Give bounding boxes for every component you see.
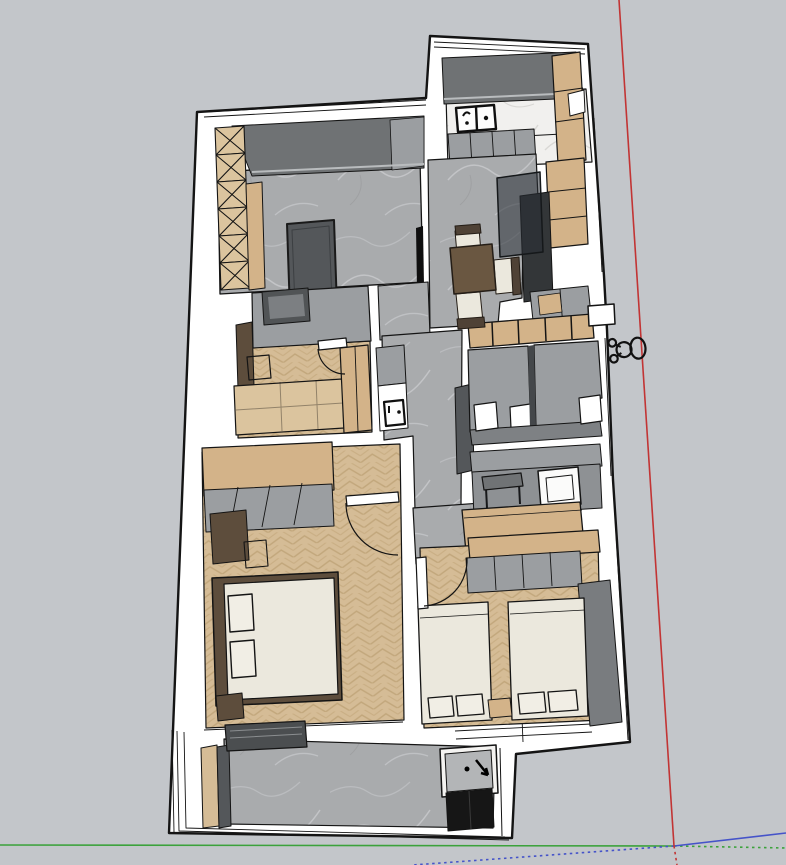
living-window-end-panel <box>390 117 424 170</box>
master-bedroom <box>202 442 404 728</box>
wall-tv <box>416 226 424 288</box>
lattice-shelf <box>215 126 250 290</box>
open-entry-door <box>588 304 615 326</box>
balcony-wood-strip <box>201 745 219 828</box>
balcony-planter <box>217 745 231 828</box>
monitor-screen <box>268 294 305 319</box>
kids-door-leaf <box>416 557 428 609</box>
model-canvas[interactable] <box>0 0 786 865</box>
dining-table <box>450 244 496 294</box>
washbasin-icon <box>384 400 405 426</box>
kitchen <box>442 52 592 168</box>
pillow <box>456 694 484 716</box>
wall-notch <box>568 90 585 116</box>
shower-door-opening <box>474 402 498 431</box>
pillow <box>518 692 546 714</box>
sketchup-viewport[interactable] <box>0 0 786 865</box>
pillow <box>428 696 454 718</box>
drying-rack <box>225 721 307 751</box>
drain-dot <box>465 767 470 772</box>
hall-upper-floor <box>378 282 430 340</box>
study-wardrobe <box>340 345 372 433</box>
study-bedroom <box>234 286 372 438</box>
study-side-cabinet <box>236 322 254 389</box>
toilet-door-opening <box>579 395 602 424</box>
kids-bedroom <box>416 530 622 728</box>
bathroom <box>468 341 602 445</box>
double-bed <box>212 572 342 706</box>
pillow <box>228 594 254 632</box>
single-bed-right <box>508 598 588 720</box>
entry-cabinet-wood-patch <box>538 293 562 315</box>
alcove-wall <box>376 345 406 386</box>
balcony-sink-unit <box>440 745 498 831</box>
bedside-table <box>488 698 512 718</box>
single-bed-left <box>418 602 492 724</box>
master-dresser <box>210 510 249 564</box>
entry-cabinet-upper <box>546 158 588 248</box>
kitchen-sink-icon <box>456 105 496 132</box>
living-room <box>215 116 424 312</box>
apartment-model[interactable] <box>169 36 630 840</box>
wood-side-panel <box>246 182 265 290</box>
glass-partition <box>497 172 543 257</box>
bed-end-bench <box>216 693 244 721</box>
pillow <box>230 640 256 678</box>
pillow <box>548 690 578 712</box>
green-axis-solid <box>0 845 674 846</box>
